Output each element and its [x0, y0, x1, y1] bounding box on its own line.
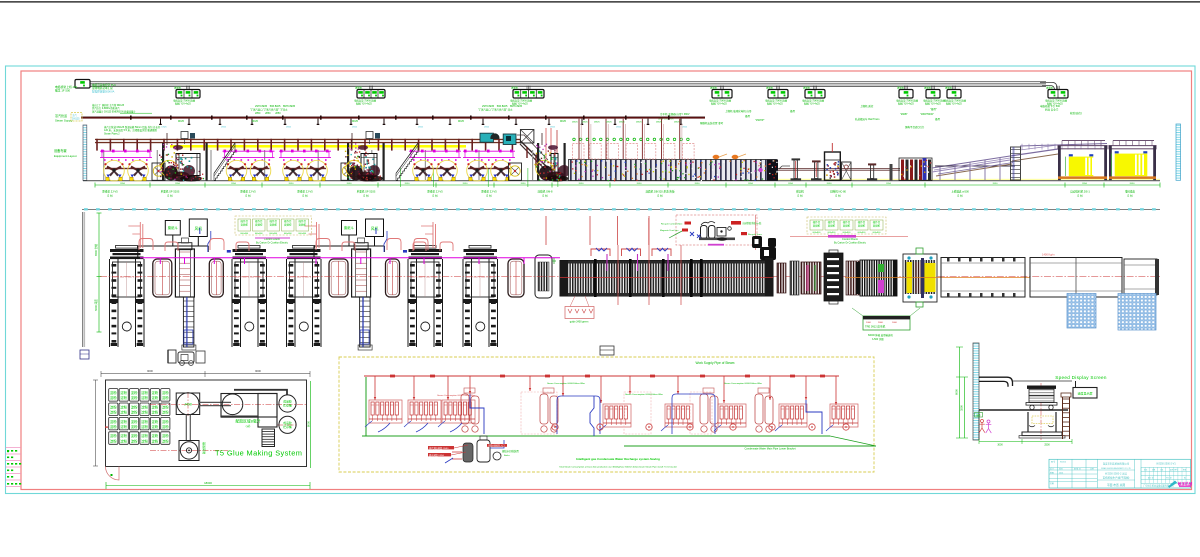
svg-text:淀粉: 淀粉	[162, 419, 169, 424]
svg-text:蒸汽管道: 蒸汽管道	[55, 113, 67, 118]
svg-text:Boiler: Boiler	[504, 454, 510, 457]
svg-text:淀粉: 淀粉	[131, 390, 138, 395]
svg-text:TRE 0912 皮带机: TRE 0912 皮带机	[865, 325, 886, 329]
svg-text:输送泵管: 输送泵管	[201, 442, 206, 454]
svg-text:淀粉: 淀粉	[120, 424, 127, 429]
svg-text:收纸(高位): 收纸(高位)	[1070, 111, 1082, 115]
svg-text:淀粉: 淀粉	[141, 424, 148, 429]
svg-text:电缆桥架下引 500: 电缆桥架下引 500	[1040, 104, 1060, 108]
svg-text:淀粉: 淀粉	[162, 404, 169, 409]
svg-text:备用: 备用	[935, 117, 941, 121]
svg-text:DN25: DN25	[484, 127, 490, 129]
svg-text:淀粉: 淀粉	[152, 390, 159, 395]
svg-text:DN25: DN25	[560, 121, 567, 123]
svg-text:DN25: DN25	[418, 127, 424, 129]
svg-text:淀粉: 淀粉	[131, 433, 138, 438]
svg-text:淀粉: 淀粉	[120, 410, 127, 415]
svg-text:DN25: DN25	[682, 127, 688, 129]
svg-text:Speed Display Screen: Speed Display Screen	[1055, 375, 1107, 380]
svg-text:配线 YJV-4x25: 配线 YJV-4x25	[356, 102, 372, 106]
svg-text:"备用": "备用"	[930, 107, 937, 111]
svg-text:设备布置: 设备布置	[54, 148, 67, 153]
svg-text:Total Steam Consumption at lea: Total Steam Consumption at least 4ton pr…	[559, 466, 677, 469]
svg-text:DN25: DN25	[582, 122, 588, 124]
svg-text:8000: 8000	[307, 420, 311, 427]
svg-text:2500: 2500	[1044, 443, 1050, 446]
svg-text:配线 YJV-4x25: 配线 YJV-4x25	[898, 102, 914, 106]
svg-text:淀粉: 淀粉	[120, 433, 127, 438]
svg-text:9000: 9000	[255, 369, 261, 373]
svg-text:DN25: DN25	[606, 122, 612, 124]
svg-text:guide 2400 green: guide 2400 green	[570, 321, 589, 324]
svg-text:淀粉: 淀粉	[110, 433, 117, 438]
svg-text:淀粉: 淀粉	[141, 419, 148, 424]
svg-text:淋膜机: 淋膜机	[1046, 86, 1054, 90]
svg-text:淀粉: 淀粉	[110, 438, 117, 443]
svg-text:DN25: DN25	[252, 121, 259, 123]
svg-text:淀粉: 淀粉	[141, 438, 148, 443]
svg-text:1000: 1000	[866, 322, 872, 324]
svg-text:淀粉: 淀粉	[152, 433, 159, 438]
svg-text:码垛 安全门: 码垛 安全门	[1045, 108, 1059, 112]
svg-text:DN25: DN25	[286, 127, 292, 129]
svg-text:平面 布置 总图: 平面 布置 总图	[1107, 483, 1126, 487]
svg-text:600x800: 600x800	[858, 232, 867, 234]
svg-text:变频柜: 变频柜	[255, 222, 263, 226]
svg-text:DN25: DN25	[674, 122, 680, 124]
svg-text:淋膜机: 淋膜机	[803, 86, 811, 90]
svg-text:贮存桶: 贮存桶	[283, 425, 292, 429]
svg-text:上糊机 遥控: 上糊机 遥控	[860, 104, 874, 108]
svg-text:上纸输送 a-500: 上纸输送 a-500	[951, 190, 969, 194]
svg-text:2976 8k05 596 8k05 8976 8k05: 2976 8k05 596 8k05 8976 8k05	[482, 104, 523, 108]
svg-text:原纸架 ZJ-V5: 原纸架 ZJ-V5	[102, 190, 118, 194]
svg-text:2050: 2050	[695, 183, 701, 185]
svg-text:2050: 2050	[175, 183, 181, 185]
svg-text:淀粉: 淀粉	[131, 438, 138, 443]
svg-text:淋膜机: 淋膜机	[511, 86, 519, 90]
svg-text:WJ250: WJ250	[1060, 462, 1066, 464]
svg-text:淀粉: 淀粉	[141, 433, 148, 438]
svg-text:变频柜: 变频柜	[813, 223, 821, 227]
svg-text:2050: 2050	[405, 183, 411, 185]
svg-text:2050: 2050	[289, 183, 295, 185]
svg-text:淀粉: 淀粉	[141, 395, 148, 400]
svg-text:淀粉: 淀粉	[162, 438, 169, 443]
svg-text:配线 YJV-4x25: 配线 YJV-4x25	[804, 102, 820, 106]
svg-text:2600: 2600	[878, 322, 884, 324]
svg-text:DN25: DN25	[162, 127, 168, 129]
svg-text:轨道搬运车 Rail Trans: 轨道搬运车 Rail Trans	[855, 117, 880, 121]
svg-text:RUIAN LIHONG MACHINERY CO.,LTD: RUIAN LIHONG MACHINERY CO.,LTD	[1101, 467, 1132, 470]
svg-text:5000 间距: 5000 间距	[94, 299, 98, 311]
svg-text:淀粉: 淀粉	[110, 419, 117, 424]
svg-text:1400 Kg/m: 1400 Kg/m	[1042, 253, 1055, 257]
svg-text:2050: 2050	[579, 183, 585, 185]
svg-text:2850 2850 2850: 2850 2850 2850	[255, 112, 281, 115]
svg-text:废纸斗: 废纸斗	[168, 225, 179, 230]
svg-text:T5 Glue Making System: T5 Glue Making System	[215, 449, 302, 458]
svg-text:600x800: 600x800	[828, 232, 837, 234]
svg-text:淀粉: 淀粉	[131, 395, 138, 400]
svg-text:淋膜机: 淋膜机	[766, 86, 774, 90]
svg-text:DN25: DN25	[656, 122, 662, 124]
svg-text:速度显示屏: 速度显示屏	[1077, 391, 1092, 396]
svg-text:By Carton Or Cushion Electric: By Carton Or Cushion Electric	[834, 241, 867, 244]
svg-text:淀粉: 淀粉	[131, 424, 138, 429]
svg-text:Steam Supply: Steam Supply	[55, 119, 73, 123]
svg-text:单面机 SF-320S: 单面机 SF-320S	[161, 190, 180, 194]
svg-text:Intelligent gas Condensate Wat: Intelligent gas Condensate Water Recharg…	[576, 457, 660, 461]
svg-text:WJ250-2500-2 五层: WJ250-2500-2 五层	[1105, 472, 1128, 476]
svg-text:废纸斗: 废纸斗	[344, 225, 355, 230]
svg-text:DN25: DN25	[619, 122, 625, 124]
svg-text:Steam Consumption 600KG/Hour 6: Steam Consumption 600KG/Hour 6Bar	[625, 393, 663, 396]
svg-text:DN25: DN25	[178, 121, 185, 123]
svg-text:DN25: DN25	[221, 127, 227, 129]
svg-text:J400: J400	[184, 403, 192, 407]
svg-text:Recycle Trans: Recycle Trans	[748, 233, 763, 236]
svg-text:"150HP": "150HP"	[755, 119, 765, 122]
svg-text:淀粉: 淀粉	[110, 404, 117, 409]
svg-text:Steam Consumption 600KG/Hour 6: Steam Consumption 600KG/Hour 6Bar	[547, 382, 585, 385]
svg-text:单面机 SF-320S: 单面机 SF-320S	[357, 190, 376, 194]
svg-text:6500 全幅: 6500 全幅	[94, 244, 98, 256]
svg-text:淋膜机: 淋膜机	[710, 86, 718, 90]
svg-text:贮存桶: 贮存桶	[283, 404, 292, 408]
svg-text:主汽: 主汽	[72, 113, 77, 117]
svg-text:DN25: DN25	[594, 122, 600, 124]
svg-text:600x800: 600x800	[240, 233, 249, 235]
svg-text:淀粉: 淀粉	[110, 395, 117, 400]
svg-text:淀粉: 淀粉	[120, 419, 127, 424]
svg-text:2050: 2050	[827, 183, 833, 185]
svg-text:淀粉: 淀粉	[162, 390, 169, 395]
svg-text:变频柜: 变频柜	[828, 223, 836, 227]
svg-text:2050: 2050	[347, 183, 353, 185]
svg-text:"260B": "260B"	[900, 113, 908, 116]
svg-text:2050: 2050	[637, 183, 643, 185]
svg-text:2050: 2050	[748, 183, 754, 185]
svg-text:淋膜机: 淋膜机	[945, 86, 953, 90]
svg-text:9000: 9000	[147, 369, 153, 373]
svg-text:淀粉: 淀粉	[120, 438, 127, 443]
svg-text:淀粉: 淀粉	[120, 390, 127, 395]
svg-text:淀粉: 淀粉	[152, 438, 159, 443]
svg-text:配线 YJV-4x25: 配线 YJV-4x25	[946, 102, 962, 106]
svg-text:2050: 2050	[120, 183, 126, 185]
svg-text:风机: 风机	[371, 226, 379, 231]
svg-text:横切机: 横切机	[796, 190, 804, 194]
svg-text:配线 YJV-4x25: 配线 YJV-4x25	[175, 102, 191, 106]
svg-text:2050: 2050	[788, 183, 794, 185]
svg-text:变频柜: 变频柜	[284, 222, 292, 226]
svg-text:冷干机 变频器 自带Y 380V: 冷干机 变频器 自带Y 380V	[660, 112, 690, 116]
svg-text:(㎡): (㎡)	[246, 424, 251, 428]
svg-text:配线 YJV-4x25: 配线 YJV-4x25	[711, 102, 727, 106]
svg-text:DN25: DN25	[458, 121, 465, 123]
svg-text:堆码输出: 堆码输出	[1125, 190, 1136, 194]
svg-text:淀粉: 淀粉	[141, 410, 148, 415]
svg-text:3000: 3000	[997, 443, 1003, 446]
svg-text:双面机 DB-320 烘道 热板: 双面机 DB-320 烘道 热板	[645, 190, 675, 194]
svg-text:钢构平台底(另计): 钢构平台底(另计)	[905, 125, 924, 129]
svg-text:DN25: DN25	[616, 127, 622, 129]
svg-text:Condensate Water Main Pipe Low: Condensate Water Main Pipe Lower Bracket	[744, 447, 795, 451]
svg-text:涂胶机 GM-8: 涂胶机 GM-8	[538, 190, 554, 194]
svg-text:切断机 NC-80: 切断机 NC-80	[830, 190, 847, 194]
svg-text:淋膜机: 淋膜机	[897, 86, 905, 90]
svg-text:淀粉: 淀粉	[110, 424, 117, 429]
svg-text:配电柜容量500KVA: 配电柜容量500KVA	[92, 89, 115, 93]
svg-text:原纸架 ZJ-V5: 原纸架 ZJ-V5	[240, 190, 256, 194]
svg-text:原纸架 ZJ-V5: 原纸架 ZJ-V5	[481, 190, 497, 194]
svg-text:DN125: DN125	[72, 118, 80, 121]
svg-text:淋膜机: 淋膜机	[355, 86, 363, 90]
svg-text:风机: 风机	[195, 226, 203, 231]
svg-text:2050: 2050	[463, 183, 469, 185]
svg-text:变频柜: 变频柜	[240, 222, 248, 226]
svg-text:配线 YJV-4x25: 配线 YJV-4x25	[767, 102, 783, 106]
svg-text:原纸架 ZJ-V5: 原纸架 ZJ-V5	[297, 190, 313, 194]
svg-text:Steam Pipes,2: Steam Pipes,2	[104, 132, 120, 135]
svg-text:2050: 2050	[521, 183, 527, 185]
svg-text:淀粉: 淀粉	[131, 404, 138, 409]
svg-text:淀粉: 淀粉	[141, 390, 148, 395]
svg-text:淀粉: 淀粉	[141, 404, 148, 409]
svg-text:2050: 2050	[886, 183, 892, 185]
svg-text:600x800: 600x800	[269, 233, 278, 235]
svg-text:淀粉: 淀粉	[120, 404, 127, 409]
svg-text:600x800: 600x800	[284, 233, 293, 235]
svg-text:上糊机 玻璃化电机 自带: 上糊机 玻璃化电机 自带	[725, 109, 752, 113]
svg-text:"1800*6000": "1800*6000"	[920, 113, 934, 116]
svg-text:变频柜: 变频柜	[858, 223, 866, 227]
svg-text:配线 YJV-4x25: 配线 YJV-4x25	[925, 102, 941, 106]
svg-text:原纸架 ZJ-V5: 原纸架 ZJ-V5	[427, 190, 443, 194]
svg-text:DN25: DN25	[572, 122, 578, 124]
svg-text:变频柜: 变频柜	[269, 222, 277, 226]
svg-text:备用: 备用	[790, 109, 796, 113]
svg-text:2024: 2024	[1059, 472, 1063, 474]
svg-text:凝结水回收装置: 凝结水回收装置	[502, 449, 519, 453]
svg-text:Equipment Layout: Equipment Layout	[54, 154, 77, 158]
svg-text:WJ250-2500-2-V1: WJ250-2500-2-V1	[1156, 463, 1176, 466]
svg-text:淀粉: 淀粉	[162, 424, 169, 429]
svg-text:2976 8k05 596 8k05 8976 8k05: 2976 8k05 596 8k05 8976 8k05	[255, 104, 296, 108]
svg-text:Steam Consumption 600KG/Hour 6: Steam Consumption 600KG/Hour 6Bar	[724, 382, 762, 385]
svg-text:"1"蒸汽接口 "2"蒸汽供汽管" "3"回水: "1"蒸汽接口 "2"蒸汽供汽管" "3"回水	[250, 108, 288, 112]
svg-text:淀粉: 淀粉	[110, 410, 117, 415]
svg-text:Recycle Control Valve: Recycle Control Valve	[661, 223, 683, 226]
svg-text:DN25: DN25	[636, 122, 642, 124]
svg-text:DN25: DN25	[352, 127, 358, 129]
svg-text:配胶区域8毫升: 配胶区域8毫升	[236, 419, 261, 424]
svg-text:"1"蒸汽接口 "2"蒸汽供汽管" 回水: "1"蒸汽接口 "2"蒸汽供汽管" 回水	[478, 108, 513, 112]
svg-text:变频柜: 变频柜	[873, 223, 881, 227]
svg-text:瓦楞纸板生产线(平面图): 瓦楞纸板生产线(平面图)	[1103, 476, 1130, 480]
svg-text:敏孚机械: 敏孚机械	[1177, 481, 1193, 486]
svg-text:3500: 3500	[960, 405, 964, 411]
svg-text:淀粉: 淀粉	[152, 395, 159, 400]
svg-text:淀粉: 淀粉	[152, 410, 159, 415]
svg-text:淀粉: 淀粉	[162, 433, 169, 438]
svg-text:600x800: 600x800	[843, 232, 852, 234]
svg-text:2050: 2050	[1130, 183, 1136, 185]
svg-text:18000: 18000	[204, 481, 212, 485]
svg-text:淀粉: 淀粉	[152, 419, 159, 424]
svg-text:淋膜机: 淋膜机	[924, 86, 932, 90]
svg-text:备用: 备用	[745, 114, 751, 118]
svg-text:变频柜: 变频柜	[843, 223, 851, 227]
svg-text:2050: 2050	[993, 183, 999, 185]
svg-text:敏孚 1F 500: 敏孚 1F 500	[55, 89, 71, 93]
svg-text:淀粉: 淀粉	[131, 419, 138, 424]
svg-text:2050: 2050	[231, 183, 237, 185]
svg-text:自动堆码机 DS-1: 自动堆码机 DS-1	[1070, 190, 1090, 194]
svg-text:600x800: 600x800	[298, 233, 307, 235]
svg-text:淀粉: 淀粉	[110, 390, 117, 395]
svg-text:DN25: DN25	[352, 121, 359, 123]
svg-text:1600: 1600	[892, 322, 898, 324]
svg-text:淀粉: 淀粉	[162, 395, 169, 400]
svg-text:淀粉: 淀粉	[162, 410, 169, 415]
svg-text:60000 伸缩 皮带输送机: 60000 伸缩 皮带输送机	[868, 333, 893, 337]
svg-text:淀粉: 淀粉	[152, 404, 159, 409]
svg-text:变频柜: 变频柜	[298, 222, 306, 226]
svg-text:b-500 详图: b-500 详图	[872, 337, 884, 341]
svg-text:淀粉: 淀粉	[131, 410, 138, 415]
svg-text:淀粉: 淀粉	[120, 395, 127, 400]
svg-text:2050: 2050	[1082, 183, 1088, 185]
svg-text:淀粉: 淀粉	[152, 424, 159, 429]
svg-text:600x800: 600x800	[873, 232, 882, 234]
svg-text:600x800: 600x800	[813, 232, 822, 234]
svg-text:瑞安市利宏机械有限公司: 瑞安市利宏机械有限公司	[1103, 462, 1130, 466]
svg-text:By Carton Or Cushion Electric: By Carton Or Cushion Electric	[256, 241, 289, 244]
svg-text:600x800: 600x800	[255, 233, 264, 235]
svg-text:6000: 6000	[955, 389, 959, 395]
svg-text:Steam Consumption 600KG/Hour 8: Steam Consumption 600KG/Hour 8Bar	[437, 394, 475, 397]
svg-text:隔膜机安装位置 参考: 隔膜机安装位置 参考	[700, 121, 724, 125]
svg-text:Work Supply Pipe of Steam: Work Supply Pipe of Steam	[696, 361, 735, 365]
svg-text:Magnetic Dust Iron: Magnetic Dust Iron	[660, 229, 679, 232]
svg-text:淋膜机: 淋膜机	[174, 86, 182, 90]
